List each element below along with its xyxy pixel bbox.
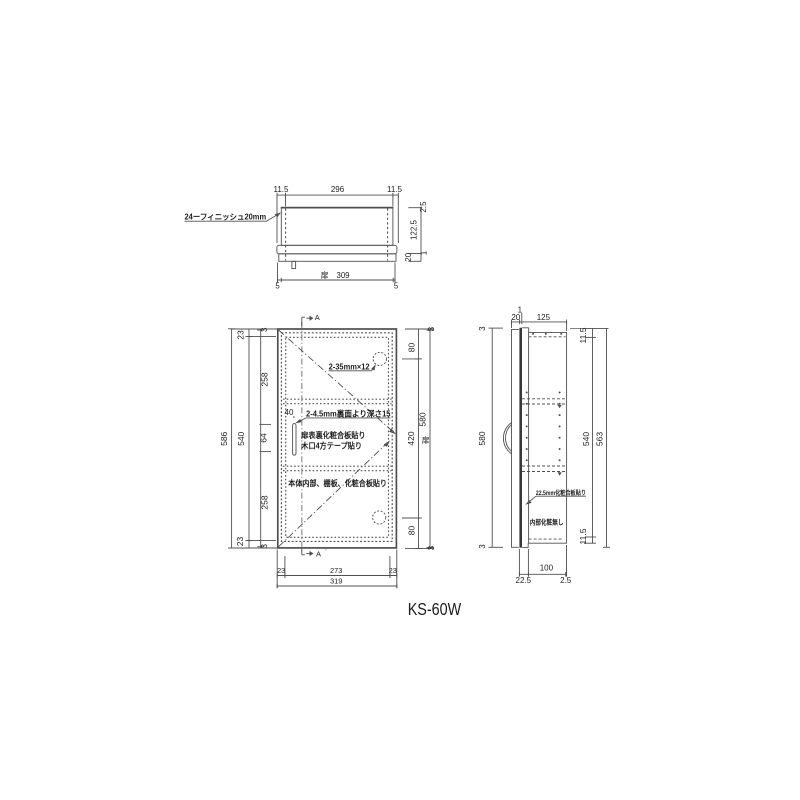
svg-text:22.5: 22.5 — [516, 576, 532, 585]
svg-text:3: 3 — [260, 327, 269, 332]
svg-text:A: A — [316, 550, 321, 559]
svg-text:125: 125 — [537, 313, 551, 322]
svg-text:扉: 扉 — [321, 270, 329, 280]
svg-text:2-4.5mm裏面より深さ15: 2-4.5mm裏面より深さ15 — [306, 408, 391, 418]
svg-text:5: 5 — [275, 282, 280, 291]
svg-text:20: 20 — [404, 252, 413, 261]
svg-text:3: 3 — [427, 545, 436, 550]
svg-text:273: 273 — [330, 566, 343, 575]
svg-text:5: 5 — [394, 282, 399, 291]
svg-text:64: 64 — [258, 433, 268, 443]
svg-text:11.5: 11.5 — [387, 185, 403, 194]
svg-text:80: 80 — [406, 526, 416, 536]
svg-text:扉表裏化粧合板貼り: 扉表裏化粧合板貼り — [300, 430, 365, 440]
svg-text:319: 319 — [330, 576, 343, 585]
svg-text:540: 540 — [581, 432, 591, 446]
svg-text:22.5mm化粧合板貼り: 22.5mm化粧合板貼り — [536, 489, 586, 497]
svg-text:扉: 扉 — [422, 435, 430, 445]
svg-text:11.5: 11.5 — [578, 528, 588, 544]
svg-text:木口4方テープ貼り: 木口4方テープ貼り — [300, 441, 362, 451]
svg-text:580: 580 — [477, 431, 487, 445]
svg-text:258: 258 — [260, 495, 270, 509]
svg-text:563: 563 — [595, 432, 605, 446]
svg-text:296: 296 — [331, 185, 345, 194]
svg-text:11.5: 11.5 — [578, 327, 588, 343]
svg-text:A: A — [315, 313, 320, 322]
svg-text:': ' — [325, 550, 326, 556]
svg-text:内部化粧無し: 内部化粧無し — [530, 518, 564, 527]
svg-text:KS-60W: KS-60W — [408, 599, 462, 619]
svg-text:24ーフィニッシュ20mm: 24ーフィニッシュ20mm — [185, 213, 267, 222]
svg-text:23: 23 — [235, 537, 245, 547]
svg-text:23: 23 — [236, 330, 246, 340]
svg-text:3: 3 — [478, 544, 487, 549]
svg-text:2.5: 2.5 — [560, 576, 572, 585]
svg-text:3: 3 — [478, 326, 487, 331]
svg-text:20: 20 — [511, 313, 520, 322]
svg-text:本体内部、棚板、化粧合板貼り: 本体内部、棚板、化粧合板貼り — [288, 478, 387, 488]
svg-text:2-35mm×12: 2-35mm×12 — [329, 361, 370, 371]
svg-text:580: 580 — [417, 412, 427, 426]
svg-text:80: 80 — [406, 343, 416, 353]
svg-text:40: 40 — [285, 408, 294, 417]
svg-text:420: 420 — [406, 431, 416, 445]
svg-text:540: 540 — [236, 431, 246, 445]
svg-text:586: 586 — [219, 431, 229, 445]
svg-text:309: 309 — [336, 271, 349, 280]
svg-text:23: 23 — [277, 566, 285, 575]
svg-text:258: 258 — [260, 372, 270, 386]
svg-text:3: 3 — [427, 326, 436, 331]
svg-text:2.5: 2.5 — [419, 201, 428, 213]
svg-text:100: 100 — [540, 563, 554, 572]
svg-text:1: 1 — [419, 250, 428, 255]
svg-text:11.5: 11.5 — [274, 185, 290, 194]
svg-text:122.5: 122.5 — [410, 219, 419, 240]
